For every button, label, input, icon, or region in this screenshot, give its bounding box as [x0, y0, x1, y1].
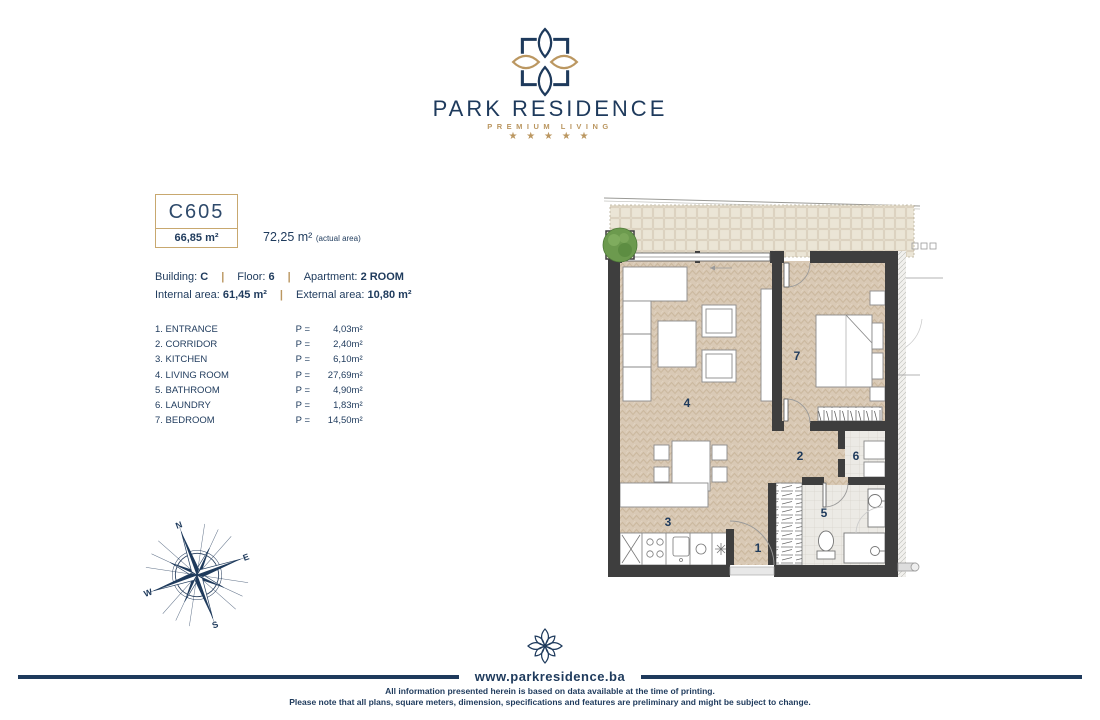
rule-right — [641, 675, 1082, 679]
room-list: 1. ENTRANCE P = 4,03m² 2. CORRIDOR P = 2… — [155, 322, 363, 428]
compass-south-label: S — [211, 619, 220, 630]
room-list-item: 3. KITCHEN P = 6,10m² — [155, 352, 363, 367]
compass-north-label: N — [174, 519, 183, 531]
toilet-tank — [817, 551, 835, 559]
room-list-item: 6. LAUNDRY P = 1,83m² — [155, 398, 363, 413]
room-name: 5. BATHROOM — [155, 383, 293, 398]
coffee-table — [658, 321, 696, 367]
room-area-value: 4,90m² — [313, 383, 363, 398]
unit-info-row-2: Internal area: 61,45 m²|External area: 1… — [155, 289, 412, 301]
internal-area-label: Internal area: — [155, 289, 220, 301]
actual-area-note: (actual area) — [316, 234, 361, 243]
separator: | — [288, 271, 291, 283]
footer-flower-icon — [527, 626, 563, 666]
exterior-context — [898, 243, 943, 577]
rule-left — [18, 675, 459, 679]
room-list-item: 2. CORRIDOR P = 2,40m² — [155, 337, 363, 352]
laundry-machines — [864, 441, 885, 477]
room-number-bedroom: 7 — [794, 349, 801, 363]
chair — [712, 445, 727, 460]
unit-code: C605 — [156, 195, 237, 228]
brand-tagline: PREMIUM LIVING — [0, 122, 1100, 131]
entrance-closet — [776, 483, 802, 565]
room-number-living: 4 — [684, 396, 691, 410]
terrace-plant — [603, 228, 637, 262]
chair — [712, 467, 727, 482]
nightstand — [870, 291, 885, 305]
compass-rose: N E S W — [138, 516, 256, 634]
compass-west-label: W — [142, 586, 154, 598]
unit-code-box: C605 66,85 m² — [155, 194, 238, 248]
kitchen-counter — [620, 533, 730, 565]
room-area-prefix: P = — [296, 352, 310, 367]
separator: | — [221, 271, 224, 283]
separator: | — [280, 289, 283, 301]
dryer — [864, 462, 885, 477]
brochure-page: PARK RESIDENCE PREMIUM LIVING ★ ★ ★ ★ ★ … — [0, 0, 1100, 720]
floor-value: 6 — [268, 271, 274, 283]
room-name: 1. ENTRANCE — [155, 322, 293, 337]
external-area-value: 10,80 m² — [368, 289, 412, 301]
room-area-prefix: P = — [296, 413, 310, 428]
room-area-prefix: P = — [296, 322, 310, 337]
room-area-value: 6,10m² — [313, 352, 363, 367]
tree-icon — [603, 228, 637, 262]
actual-area-value: 72,25 m² — [263, 230, 312, 244]
room-name: 3. KITCHEN — [155, 352, 293, 367]
room-number-laundry: 6 — [853, 449, 860, 463]
disclaimer-line-1: All information presented herein is base… — [0, 686, 1100, 696]
room-area-prefix: P = — [296, 337, 310, 352]
internal-area-value: 61,45 m² — [223, 289, 267, 301]
brand-name: PARK RESIDENCE — [0, 96, 1100, 122]
website-url: www.parkresidence.ba — [475, 669, 625, 684]
washer — [864, 441, 885, 459]
bed — [816, 315, 872, 387]
room-area-value: 1,83m² — [313, 398, 363, 413]
room-area-prefix: P = — [296, 368, 310, 383]
unit-gross-area: 66,85 m² — [156, 228, 237, 247]
room-list-item: 7. BEDROOM P = 14,50m² — [155, 413, 363, 428]
room-number-bathroom: 5 — [821, 506, 828, 520]
chair — [654, 467, 669, 482]
room-name: 2. CORRIDOR — [155, 337, 293, 352]
room-number-kitchen: 3 — [665, 515, 672, 529]
floor-label: Floor: — [237, 271, 265, 283]
room-name: 4. LIVING ROOM — [155, 368, 293, 383]
unit-info-row-1: Building: C|Floor: 6|Apartment: 2 ROOM — [155, 271, 404, 283]
building-label: Building: — [155, 271, 197, 283]
kitchen-island — [620, 483, 708, 507]
chair — [654, 445, 669, 460]
building-value: C — [200, 271, 208, 283]
washbasin — [869, 495, 882, 508]
terrace-door-leaf — [784, 263, 789, 287]
external-area-label: External area: — [296, 289, 364, 301]
floor-plan: 1 2 3 4 5 6 7 — [598, 185, 943, 585]
unit-actual-area: 72,25 m² (actual area) — [263, 230, 361, 244]
logo-petal-vertical — [539, 29, 551, 95]
pillow — [872, 353, 883, 379]
room-area-value: 2,40m² — [313, 337, 363, 352]
nightstand — [870, 387, 885, 401]
website-row: www.parkresidence.ba — [0, 669, 1100, 684]
bathroom-door-leaf — [823, 483, 826, 507]
room-number-corridor: 2 — [797, 449, 804, 463]
pillow — [872, 323, 883, 349]
room-list-item: 5. BATHROOM P = 4,90m² — [155, 383, 363, 398]
entrance-threshold — [730, 567, 774, 575]
room-name: 7. BEDROOM — [155, 413, 293, 428]
sofa — [623, 267, 687, 301]
room-area-prefix: P = — [296, 383, 310, 398]
room-area-value: 14,50m² — [313, 413, 363, 428]
room-area-prefix: P = — [296, 398, 310, 413]
brand-logo-icon — [509, 26, 581, 98]
disclaimer-line-2: Please note that all plans, square meter… — [0, 697, 1100, 707]
apartment-value: 2 ROOM — [361, 271, 404, 283]
room-name: 6. LAUNDRY — [155, 398, 293, 413]
sofa-chaise — [623, 301, 651, 401]
room-area-value: 27,69m² — [313, 368, 363, 383]
toilet — [819, 531, 834, 551]
compass-east-label: E — [241, 551, 250, 562]
tv-unit — [761, 289, 773, 401]
room-list-item: 4. LIVING ROOM P = 27,69m² — [155, 368, 363, 383]
bedroom-door-leaf — [784, 399, 788, 421]
room-number-entrance: 1 — [755, 541, 762, 555]
room-area-value: 4,03m² — [313, 322, 363, 337]
apartment-label: Apartment: — [304, 271, 358, 283]
shower-drain — [871, 547, 880, 556]
room-list-item: 1. ENTRANCE P = 4,03m² — [155, 322, 363, 337]
terrace — [604, 198, 920, 257]
brand-stars: ★ ★ ★ ★ ★ — [0, 131, 1100, 142]
